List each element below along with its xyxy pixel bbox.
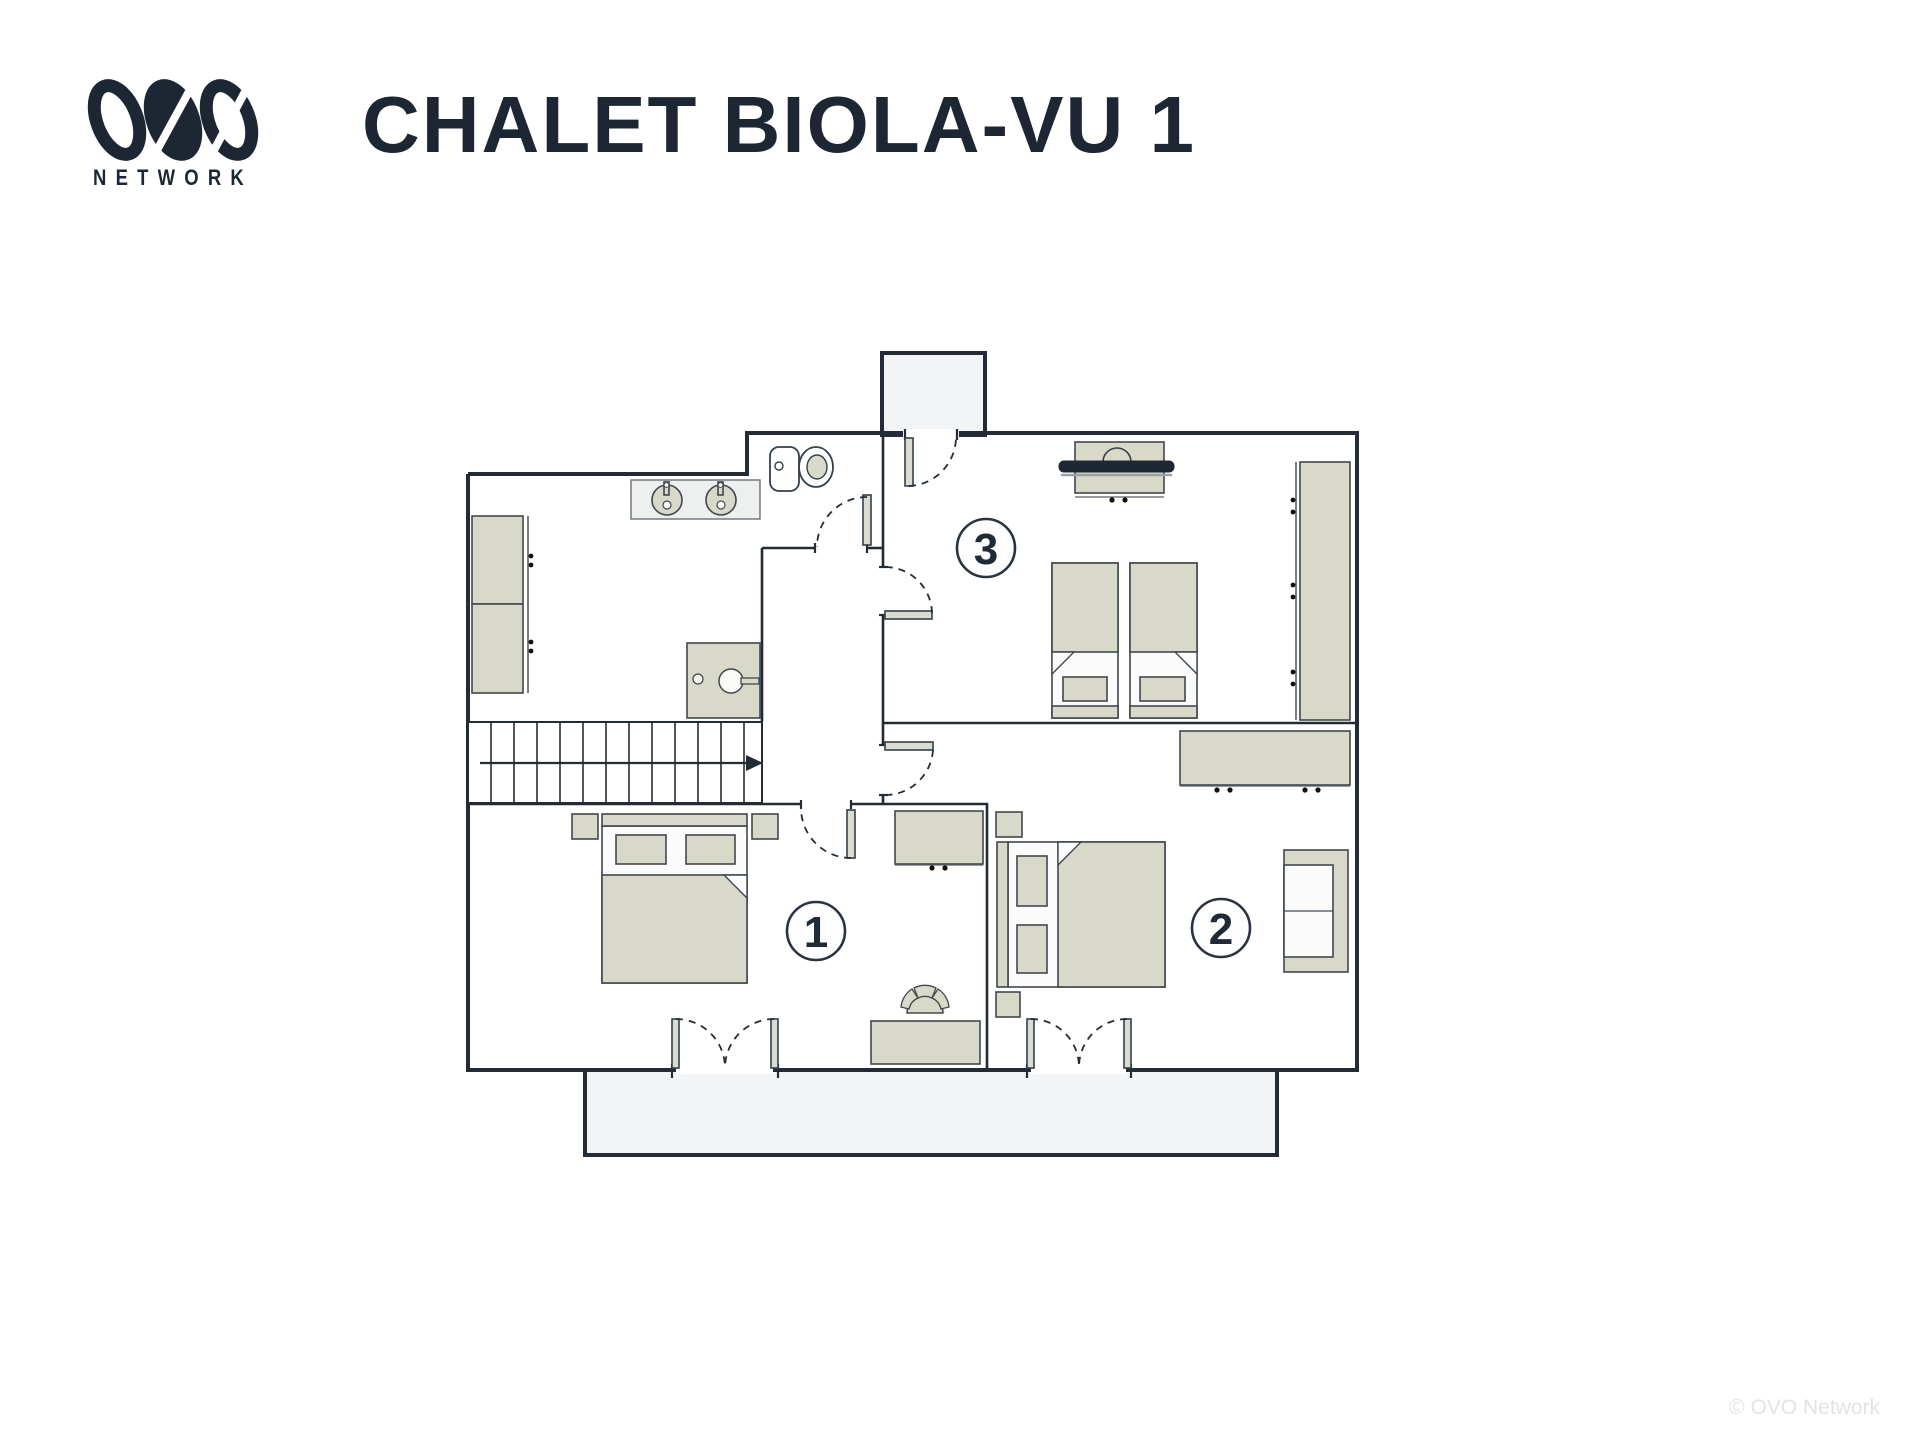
bedroom-3-furniture xyxy=(1052,442,1350,720)
page-title: CHALET BIOLA-VU 1 xyxy=(362,80,1196,169)
shower-icon xyxy=(687,643,760,718)
dresser-icon xyxy=(895,811,983,871)
room-1-badge: 1 xyxy=(787,902,845,960)
double-sink-vanity-icon xyxy=(631,480,760,519)
stairs xyxy=(468,722,763,803)
wardrobe-icon xyxy=(1291,462,1350,720)
double-bed-icon xyxy=(602,814,747,983)
single-bed-icon xyxy=(1130,563,1197,718)
bedroom-1-door xyxy=(801,800,855,858)
nightstand-icon xyxy=(996,992,1020,1017)
bottom-balcony xyxy=(585,1070,1277,1155)
desk-icon xyxy=(1180,731,1350,793)
nightstand-icon xyxy=(572,814,598,839)
top-balcony xyxy=(882,353,985,435)
ovo-network-logo: NETWORK xyxy=(85,79,260,190)
sofa-icon xyxy=(1284,850,1348,972)
ovo-logo-icon xyxy=(85,79,260,161)
room-3-badge: 3 xyxy=(957,519,1015,577)
room-2-badge: 2 xyxy=(1192,899,1250,957)
room-1-label: 1 xyxy=(804,908,828,957)
bathroom-door xyxy=(815,495,871,553)
bedroom-2-furniture xyxy=(996,731,1350,1017)
nightstand-icon xyxy=(996,812,1022,837)
wardrobe-icon xyxy=(472,516,533,693)
desk-icon xyxy=(871,1021,980,1064)
bedroom-3-door xyxy=(879,567,932,619)
logo-subtitle: NETWORK xyxy=(93,165,253,190)
room-2-label: 2 xyxy=(1209,905,1233,954)
nightstand-icon xyxy=(752,814,778,839)
header: NETWORK CHALET BIOLA-VU 1 xyxy=(85,79,1196,190)
double-bed-icon xyxy=(997,842,1165,987)
room-3-label: 3 xyxy=(974,525,998,574)
chair-icon xyxy=(901,985,949,1013)
copyright-watermark: © OVO Network xyxy=(1729,1396,1880,1419)
single-bed-icon xyxy=(1052,563,1118,718)
bathroom xyxy=(472,447,833,718)
floor-plan: 1 2 3 xyxy=(468,353,1357,1155)
bedroom-2-door xyxy=(879,742,933,795)
toilet-icon xyxy=(770,447,833,491)
tv-unit-icon xyxy=(1059,442,1174,503)
